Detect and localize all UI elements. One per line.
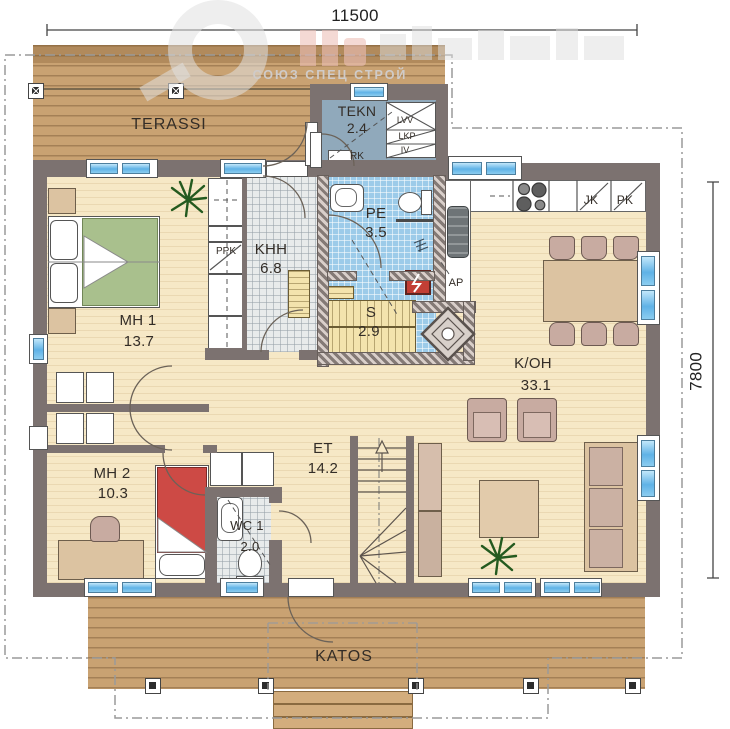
wall-mh2-north xyxy=(203,445,217,453)
terrace-post xyxy=(28,83,44,99)
watermark-shape xyxy=(478,30,504,60)
room-label-khh: KHH xyxy=(241,242,301,259)
canopy-deck xyxy=(88,597,645,689)
wall-pe-sauna-divider xyxy=(328,272,356,280)
canopy-post xyxy=(145,678,161,694)
window-glass xyxy=(226,582,258,593)
wall-east xyxy=(646,163,660,597)
wall-wc-east xyxy=(269,487,282,503)
window-glass xyxy=(354,87,384,97)
single-bed-foot xyxy=(159,554,205,576)
closet xyxy=(208,226,244,242)
window-glass xyxy=(122,582,152,593)
wall-wc-west xyxy=(205,487,217,583)
hall-cabinet xyxy=(418,443,442,511)
room-area-wc1: 2.0 xyxy=(215,540,285,554)
room-label-et: ET xyxy=(283,441,363,458)
wall-fireplace-east xyxy=(464,302,474,360)
appliance-label-iv: IV xyxy=(390,146,420,156)
door-gap-khh-terrace xyxy=(266,161,308,177)
door-gap-tekn xyxy=(310,132,322,168)
dining-chair xyxy=(581,236,607,260)
room-area-mh2: 10.3 xyxy=(73,486,153,503)
room-area-tekn: 2.4 xyxy=(322,121,392,136)
room-area-et: 14.2 xyxy=(283,461,363,478)
dining-table xyxy=(543,260,641,322)
wall-stair-east xyxy=(406,436,414,583)
desk-chair xyxy=(90,516,120,542)
entrance-step xyxy=(273,717,413,729)
window-glass xyxy=(452,162,482,175)
appliance-label-lvv: LVV xyxy=(390,116,420,126)
wall-sauna-south xyxy=(318,353,474,364)
dining-chair xyxy=(613,236,639,260)
canopy-post xyxy=(258,678,274,694)
wardrobe xyxy=(86,413,114,444)
dimension-top: 11500 xyxy=(305,7,405,26)
wall-pe-sauna-divider xyxy=(390,272,434,280)
window-glass xyxy=(224,163,262,174)
wall-hall xyxy=(205,348,247,360)
entrance-step xyxy=(273,691,413,704)
dimension-line-top xyxy=(47,24,637,36)
watermark-shape xyxy=(584,36,624,60)
watermark-shape xyxy=(510,36,550,60)
window-glass xyxy=(641,256,655,286)
bathroom-washbasin-bowl xyxy=(335,188,357,207)
wall-mh2-north xyxy=(47,445,165,453)
wall-sauna-east xyxy=(434,176,445,311)
sofa-cushion xyxy=(589,529,623,568)
wall-tekn-bottom xyxy=(310,160,448,177)
window-glass xyxy=(90,163,118,174)
room-label-mh2: MH 2 xyxy=(72,466,152,483)
window-glass xyxy=(544,582,570,593)
closet xyxy=(208,274,244,316)
wardrobe xyxy=(210,452,242,486)
wall-west xyxy=(33,160,47,597)
room-label-mh1: MH 1 xyxy=(98,313,178,330)
window-glass xyxy=(641,440,655,467)
floor-plan: TERASSI TEKN 2.4 KHH 6.8 PE 3.5 S 2.9 MH… xyxy=(0,0,730,729)
window-glass xyxy=(122,163,150,174)
wardrobe xyxy=(242,452,274,486)
terrace-post xyxy=(168,83,184,99)
dining-chair xyxy=(549,322,575,346)
sofa-cushion xyxy=(589,488,623,527)
wall-wc-north xyxy=(205,487,279,497)
nightstand xyxy=(48,188,76,214)
dining-chair xyxy=(549,236,575,260)
bathroom-toilet-tank xyxy=(421,190,432,215)
window-glass xyxy=(33,338,44,360)
desk xyxy=(58,540,144,580)
room-label-sauna: S xyxy=(341,305,401,322)
room-label-katos: KATOS xyxy=(304,648,384,666)
watermark-shape xyxy=(556,28,578,60)
refrigeration-appliance xyxy=(447,206,469,258)
window-glass xyxy=(472,582,500,593)
wall-khh-south xyxy=(243,350,269,360)
dimension-line-right xyxy=(707,182,719,578)
armchair-cushion xyxy=(473,412,501,438)
window-glass xyxy=(486,162,516,175)
dining-chair xyxy=(613,322,639,346)
entrance-door xyxy=(288,578,334,597)
double-bed-cover xyxy=(82,218,158,306)
room-label-wc1: WC 1 xyxy=(212,519,282,533)
appliance-label-ppk: PPK xyxy=(210,246,242,257)
appliance-label-jk: JK xyxy=(578,194,604,207)
appliance-label-ap: AP xyxy=(443,277,469,289)
coffee-table xyxy=(479,480,539,538)
wall-sauna-west xyxy=(318,176,328,366)
single-bed-cover xyxy=(157,467,207,553)
window-glass xyxy=(641,290,655,320)
canopy-post xyxy=(625,678,641,694)
room-area-mh1: 13.7 xyxy=(99,334,179,351)
appliance-label-rk: RK xyxy=(344,151,370,162)
room-area-koh: 33.1 xyxy=(496,378,576,395)
dimension-right: 7800 xyxy=(688,336,707,406)
room-label-koh: K/OH xyxy=(493,356,573,373)
armchair-cushion xyxy=(523,412,551,438)
appliance-label-pk: PK xyxy=(612,194,638,207)
window-glass xyxy=(88,582,118,593)
window-glass xyxy=(504,582,532,593)
wardrobe xyxy=(56,372,84,403)
appliance-label-lkp: LKP xyxy=(392,132,422,142)
sofa-cushion xyxy=(589,447,623,486)
nightstand xyxy=(48,308,76,334)
wall-stair-west xyxy=(350,436,358,583)
hall-cabinet xyxy=(418,511,442,577)
window-glass xyxy=(574,582,600,593)
window xyxy=(29,426,48,450)
terrace-deck-edge xyxy=(33,45,445,63)
pillow xyxy=(50,263,78,303)
window-glass xyxy=(641,470,655,497)
room-label-tekn: TEKN xyxy=(322,104,392,119)
room-label-pe: PE xyxy=(346,206,406,223)
room-area-pe: 3.5 xyxy=(346,225,406,242)
room-label-terassi: TERASSI xyxy=(109,116,229,134)
wardrobe xyxy=(56,413,84,444)
entrance-step xyxy=(273,704,413,717)
wardrobe xyxy=(86,372,114,403)
dining-chair xyxy=(581,322,607,346)
wall-bedroom-divider xyxy=(33,404,209,412)
canopy-post xyxy=(408,678,424,694)
canopy-post xyxy=(523,678,539,694)
room-area-sauna: 2.9 xyxy=(339,324,399,341)
pillow xyxy=(50,220,78,260)
room-area-khh: 6.8 xyxy=(241,261,301,278)
closet xyxy=(208,178,244,226)
